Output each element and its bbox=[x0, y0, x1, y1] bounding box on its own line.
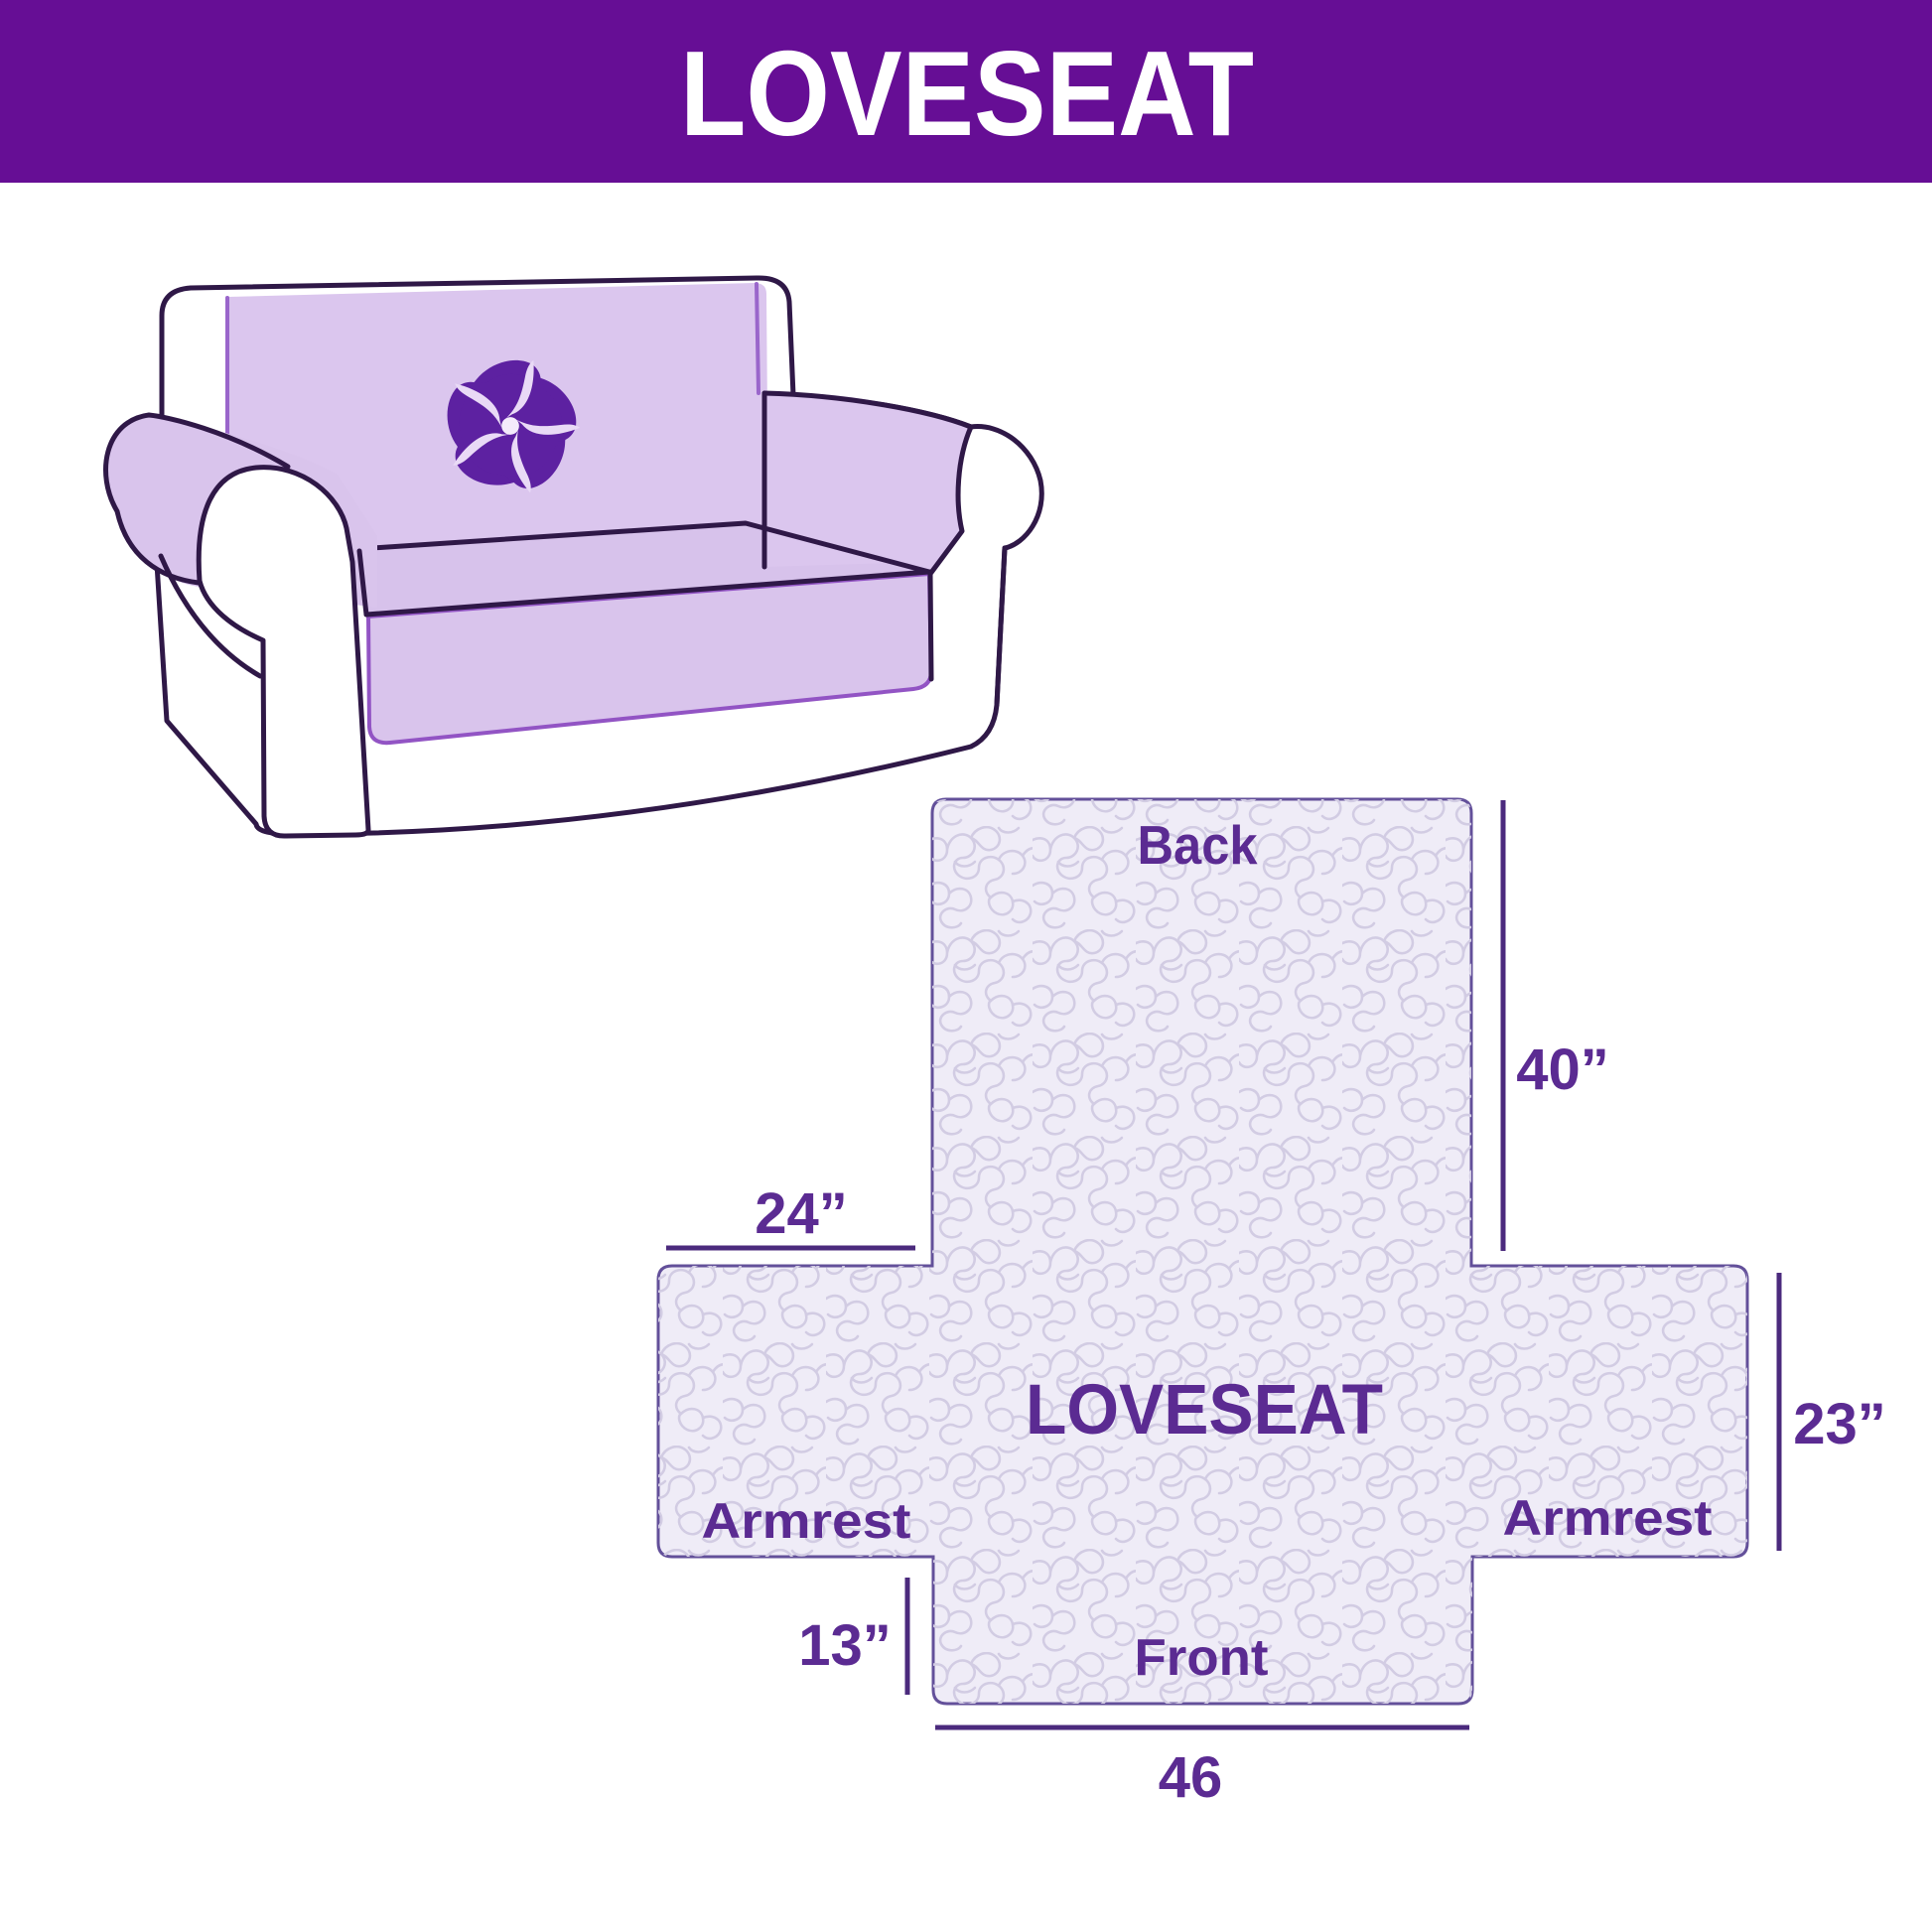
svg-text:Front: Front bbox=[1135, 1629, 1269, 1687]
svg-text:40”: 40” bbox=[1516, 1037, 1609, 1102]
svg-text:23”: 23” bbox=[1793, 1392, 1886, 1456]
svg-text:46: 46 bbox=[1159, 1745, 1223, 1810]
svg-text:Armrest: Armrest bbox=[702, 1493, 911, 1549]
svg-text:Armrest: Armrest bbox=[1503, 1490, 1713, 1546]
svg-text:LOVESEAT: LOVESEAT bbox=[680, 26, 1254, 161]
svg-text:24”: 24” bbox=[755, 1181, 848, 1246]
svg-text:13”: 13” bbox=[798, 1613, 892, 1678]
svg-text:LOVESEAT: LOVESEAT bbox=[1026, 1371, 1383, 1449]
svg-text:Back: Back bbox=[1138, 814, 1258, 876]
